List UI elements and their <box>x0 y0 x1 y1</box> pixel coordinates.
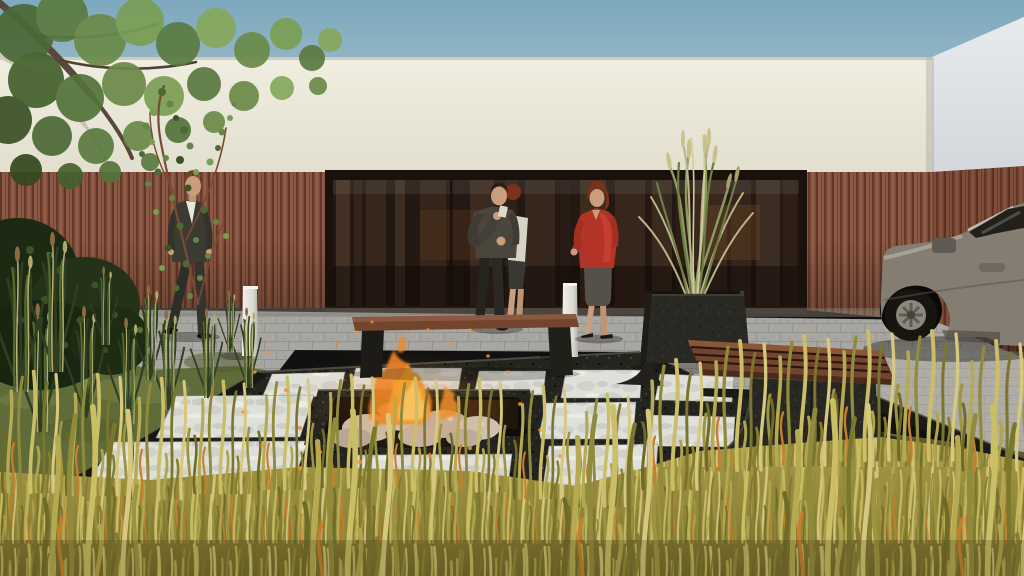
leg <box>600 304 607 335</box>
render-viewport: Exterior 3D visualization — courtyard te… <box>0 0 1024 576</box>
hidden-head-hair <box>505 184 521 200</box>
bench-shadow <box>350 367 580 381</box>
bench-leg <box>548 325 573 376</box>
head <box>590 189 605 207</box>
pencil-skirt <box>584 266 612 306</box>
glass-mullion <box>450 180 453 306</box>
hidden-skirt <box>508 260 526 290</box>
hidden-person-hand <box>497 237 506 246</box>
hair-top <box>590 181 604 189</box>
car-mirror <box>932 238 956 253</box>
meadow-bottom-shade <box>0 540 1024 576</box>
paver-slab <box>655 374 734 402</box>
car-door-handle <box>979 263 1005 272</box>
wall-corner-shade <box>926 57 934 172</box>
head <box>491 187 507 206</box>
roofline-shadow <box>0 57 932 60</box>
bench-leg <box>360 329 384 378</box>
hand <box>571 249 578 256</box>
scene-render: Exterior 3D visualization — courtyard te… <box>0 0 1024 576</box>
